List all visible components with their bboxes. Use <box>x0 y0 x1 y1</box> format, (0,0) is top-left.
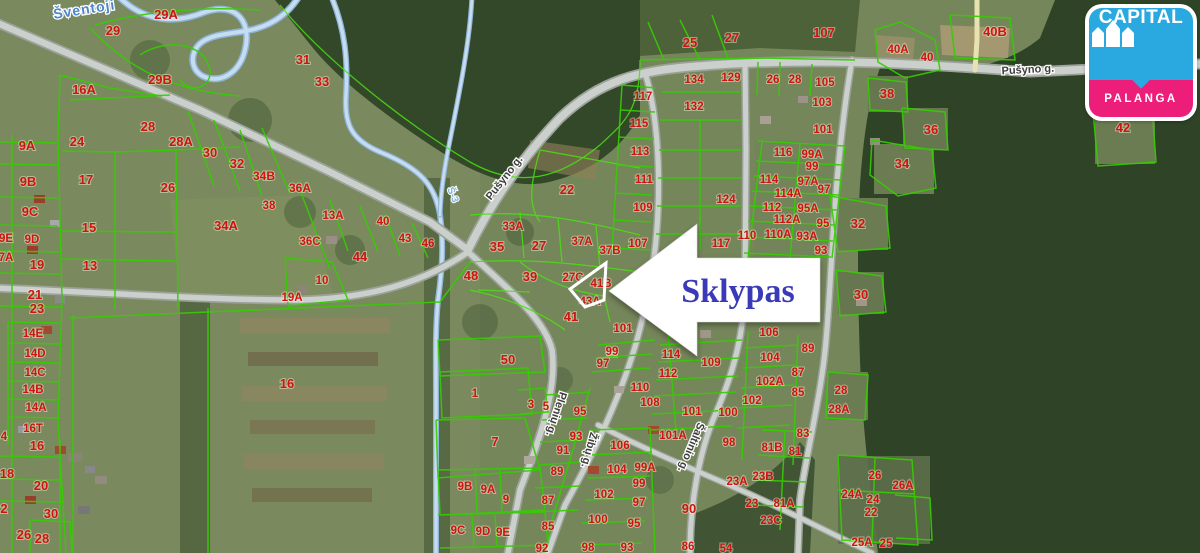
parcel-number-label: 7A <box>0 252 13 264</box>
parcel-number-label: 111 <box>635 174 654 186</box>
parcel-number-label: 36 <box>924 122 938 137</box>
parcel-number-label: 95 <box>628 518 641 530</box>
parcel-number-label: 101 <box>813 124 833 136</box>
parcel-number-label: 40 <box>921 52 934 64</box>
parcel-number-label: 95A <box>797 203 818 215</box>
logo-location-text: PALANGA <box>1104 93 1178 105</box>
parcel-number-label: 9E <box>496 527 510 539</box>
parcel-number-label: 110 <box>631 382 650 394</box>
parcel-number-label: 102 <box>594 489 613 501</box>
parcel-number-label: 95 <box>817 218 830 230</box>
parcel-number-label: 109 <box>633 202 652 214</box>
parcel-number-label: 26A <box>892 480 913 492</box>
parcel-number-label: 24 <box>867 494 880 506</box>
parcel-number-label: 97 <box>597 358 610 370</box>
parcel-number-label: 28 <box>835 385 848 397</box>
parcel-number-label: 23B <box>752 471 773 483</box>
parcel-number-label: 34A <box>214 218 238 233</box>
parcel-number-label: 93 <box>815 245 828 257</box>
parcel-number-label: 9A <box>19 138 36 153</box>
parcel-number-label: 38 <box>263 200 276 212</box>
parcel-number-label: 16T <box>23 423 43 435</box>
parcel-number-label: 9D <box>25 234 40 246</box>
logo-upper: CAPITAL <box>1089 8 1193 80</box>
parcel-number-label: 48 <box>464 268 478 283</box>
buildings-icon <box>1089 17 1137 47</box>
parcel-number-label: 99A <box>634 462 655 474</box>
parcel-number-label: 30 <box>44 506 58 521</box>
parcel-number-label: 23 <box>30 301 44 316</box>
parcel-number-label: 91 <box>557 445 570 457</box>
parcel-number-label: 100 <box>718 407 737 419</box>
parcel-number-label: 99A <box>801 149 822 161</box>
parcel-number-label: 22 <box>865 507 878 519</box>
parcel-number-label: 22 <box>560 182 574 197</box>
map-canvas: ŠventojiŠ-3 Pušyno g.Pušyno g.Plenių g.Ž… <box>0 0 1200 553</box>
parcel-number-label: 116 <box>774 147 793 159</box>
parcel-number-label: 83 <box>797 428 810 440</box>
parcel-number-label: 24A <box>841 489 862 501</box>
parcel-number-label: 105 <box>815 77 835 89</box>
parcel-number-label: 35 <box>490 239 504 254</box>
parcel-number-label: 23 <box>746 498 759 510</box>
parcel-number-label: 23C <box>760 515 781 527</box>
parcel-number-label: 9C <box>22 204 39 219</box>
parcel-number-label: 87 <box>542 495 555 507</box>
parcel-number-label: 110A <box>765 229 792 241</box>
parcel-number-label: 41B <box>590 278 611 290</box>
parcel-number-label: 25 <box>683 35 697 50</box>
parcel-number-label: 13A <box>322 210 343 222</box>
parcel-number-label: 50 <box>501 352 515 367</box>
parcel-number-label: 107 <box>628 238 647 250</box>
parcel-number-label: 28A <box>828 404 849 416</box>
parcel-number-label: 99 <box>606 346 619 358</box>
parcel-number-label: 104 <box>760 352 780 364</box>
parcel-number-label: 54 <box>720 543 733 553</box>
parcel-number-label: 29B <box>148 72 172 87</box>
parcel-number-label: 100 <box>588 514 607 526</box>
parcel-number-label: 14E <box>23 328 44 340</box>
parcel-number-label: 14C <box>24 367 45 379</box>
parcel-number-label: 16 <box>280 376 294 391</box>
parcel-number-label: 99 <box>806 161 819 173</box>
parcel-number-label: 106 <box>610 440 629 452</box>
parcel-number-label: 36C <box>299 236 320 248</box>
parcel-number-label: 98 <box>582 542 595 553</box>
parcel-number-label: 23A <box>726 476 747 488</box>
parcel-number-label: 19 <box>30 257 44 272</box>
parcel-number-label: 16 <box>30 438 44 453</box>
parcel-number-label: 24 <box>70 134 85 149</box>
parcel-number-label: 115 <box>630 118 649 130</box>
parcel-number-label: 28 <box>35 531 49 546</box>
parcel-number-label: 85 <box>542 521 555 533</box>
parcel-number-label: 28 <box>789 74 802 86</box>
parcel-number-label: 93 <box>570 431 583 443</box>
parcel-number-label: 9D <box>476 526 491 538</box>
parcel-number-label: 46 <box>422 238 435 250</box>
parcel-number-label: 27 <box>725 30 739 45</box>
parcel-number-label: 10 <box>316 275 329 287</box>
parcel-number-label: 25A <box>851 537 872 549</box>
parcel-number-label: 114 <box>760 174 779 186</box>
parcel-number-label: 9E <box>0 233 13 245</box>
parcel-number-label: 102A <box>756 376 784 388</box>
parcel-number-label: 81A <box>773 498 794 510</box>
parcel-number-label: 32 <box>851 216 865 231</box>
parcel-number-label: 3 <box>528 399 534 411</box>
parcel-number-label: 26 <box>17 527 31 542</box>
parcel-number-label: 92 <box>536 543 549 553</box>
parcel-number-label: 90 <box>682 501 696 516</box>
parcel-number-label: 114A <box>775 188 802 200</box>
parcel-number-label: 27 <box>532 238 546 253</box>
parcel-number-label: 16A <box>72 82 96 97</box>
parcel-number-label: 134 <box>684 74 704 86</box>
parcel-number-label: 9B <box>458 481 473 493</box>
parcel-number-label: 26 <box>767 74 780 86</box>
parcel-number-label: 29 <box>106 23 120 38</box>
parcel-number-label: 17 <box>79 172 93 187</box>
parcel-number-label: 9C <box>451 525 466 537</box>
parcel-number-label: 81B <box>761 442 782 454</box>
parcel-number-label: 33 <box>315 74 329 89</box>
parcel-number-label: 113 <box>631 146 650 158</box>
parcel-number-label: 98 <box>723 437 736 449</box>
parcel-number-label: 117 <box>712 238 731 250</box>
parcel-number-label: 101 <box>682 406 702 418</box>
parcel-number-label: 44 <box>353 249 368 264</box>
parcel-number-label: 114 <box>662 349 681 361</box>
parcel-number-label: 93 <box>621 542 634 553</box>
parcel-number-label: 4 <box>1 431 8 443</box>
parcel-number-label: 89 <box>802 343 815 355</box>
parcel-number-label: 95 <box>574 406 587 418</box>
parcel-number-label: 106 <box>759 327 778 339</box>
parcel-number-label: 117 <box>634 91 653 103</box>
parcel-number-label: 13 <box>83 258 97 273</box>
parcel-number-label: 89 <box>551 466 564 478</box>
parcel-number-label: 1 <box>472 388 479 400</box>
parcel-number-label: 28A <box>169 134 193 149</box>
parcel-number-label: 112 <box>659 368 678 380</box>
parcel-number-label: 5 <box>543 401 550 413</box>
parcel-number-label: 9B <box>20 174 37 189</box>
parcel-number-label: 112 <box>763 202 782 214</box>
parcel-number-label: 14B <box>22 384 43 396</box>
parcel-number-label: 37B <box>599 245 620 257</box>
parcel-number-label: 132 <box>684 101 703 113</box>
parcel-number-label: 26 <box>161 180 175 195</box>
parcel-number-label: 124 <box>716 194 736 206</box>
parcel-number-label: 97A <box>797 176 818 188</box>
parcel-number-label: 41 <box>564 309 578 324</box>
parcel-number-label: 38 <box>880 86 894 101</box>
parcel-number-label: 33A <box>502 221 523 233</box>
parcel-number-label: 40A <box>887 44 908 56</box>
parcel-number-label: 103 <box>812 97 831 109</box>
parcel-number-label: 14D <box>24 348 45 360</box>
parcel-number-label: 7 <box>491 434 498 449</box>
parcel-number-label: 30 <box>854 287 868 302</box>
parcel-number-label: 42 <box>1116 120 1130 135</box>
parcel-number-label: 40B <box>983 24 1007 39</box>
parcel-number-label: 104 <box>607 464 627 476</box>
parcel-number-label: 37A <box>571 236 592 248</box>
parcel-number-label: 109 <box>701 357 720 369</box>
parcel-number-label: 36A <box>289 181 311 195</box>
parcel-number-label: 2 <box>0 501 7 516</box>
parcel-number-label: 39 <box>523 269 537 284</box>
map-viewport[interactable]: ŠventojiŠ-3 Pušyno g.Pušyno g.Plenių g.Ž… <box>0 0 1200 553</box>
parcel-number-label: 43 <box>399 233 412 245</box>
parcel-number-label: 19A <box>281 292 302 304</box>
parcel-number-label: 129 <box>721 72 740 84</box>
parcel-number-label: 85 <box>792 387 805 399</box>
parcel-number-label: 40 <box>377 216 390 228</box>
parcel-number-label: 9A <box>481 484 496 496</box>
parcel-number-label: 101 <box>613 323 633 335</box>
parcel-number-label: 26 <box>869 470 882 482</box>
parcel-number-label: 25 <box>880 538 893 550</box>
parcel-number-label: 112A <box>774 214 801 226</box>
parcel-number-label: 30 <box>203 145 217 160</box>
parcel-number-label: 20 <box>34 478 48 493</box>
parcel-number-label: 99 <box>633 478 646 490</box>
capital-palanga-logo: CAPITAL PALANGA <box>1085 4 1197 121</box>
parcel-number-label: 110 <box>738 230 757 242</box>
parcel-number-label: 34 <box>895 156 910 171</box>
parcel-number-label: 107 <box>813 25 835 40</box>
parcel-number-label: 14A <box>25 402 46 414</box>
parcel-number-label: 97 <box>818 184 831 196</box>
parcel-number-label: 81 <box>789 446 802 458</box>
parcel-number-label: 93A <box>796 231 817 243</box>
callout-label: Sklypas <box>681 273 794 310</box>
dirt-road <box>975 0 977 70</box>
parcel-number-label: 9 <box>503 494 509 506</box>
parcel-number-label: 87 <box>792 367 805 379</box>
parcel-number-label: 101A <box>659 430 687 442</box>
parcel-number-label: 86 <box>682 541 695 553</box>
parcel-number-label: 28 <box>141 119 155 134</box>
parcel-number-label: 31 <box>296 52 310 67</box>
parcel-number-label: 15 <box>82 220 96 235</box>
parcel-number-label: 34B <box>253 169 275 183</box>
parcel-number-label: 32 <box>230 156 244 171</box>
parcel-number-label: 29A <box>154 7 178 22</box>
parcel-number-label: 18 <box>0 466 14 481</box>
parcel-number-label: 102 <box>742 395 761 407</box>
parcel-number-label: 97 <box>633 497 646 509</box>
parcel-number-label: 21 <box>28 287 42 302</box>
parcel-number-label: 108 <box>640 397 660 409</box>
